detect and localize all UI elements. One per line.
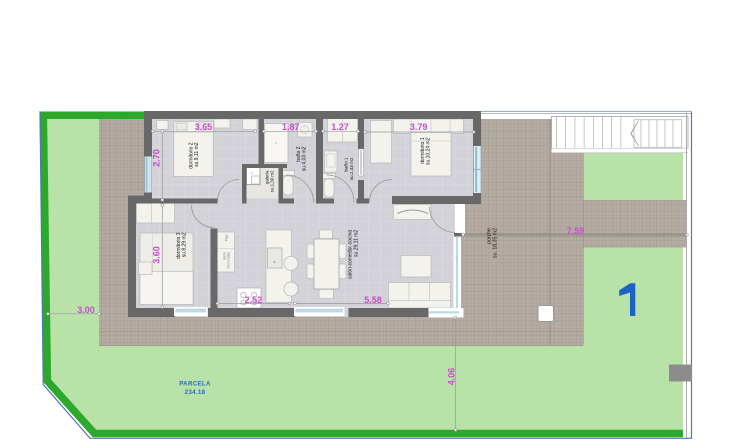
svg-text:dormitorio 1su.10,24 m2: dormitorio 1su.10,24 m2 (420, 137, 432, 165)
svg-text:dormitorio 3su.8,29 m2: dormitorio 3su.8,29 m2 (176, 232, 188, 259)
svg-text:7.59: 7.59 (567, 226, 585, 236)
svg-text:234.18: 234.18 (185, 389, 206, 396)
svg-text:3.79: 3.79 (410, 122, 428, 132)
svg-text:2.70: 2.70 (152, 149, 162, 167)
svg-text:3.65: 3.65 (195, 122, 213, 132)
svg-text:PARCELA: PARCELA (179, 381, 211, 388)
svg-text:2.52: 2.52 (245, 295, 263, 305)
svg-text:1.87: 1.87 (282, 122, 300, 132)
svg-text:1.27: 1.27 (331, 122, 349, 132)
svg-text:frigo: frigo (225, 234, 229, 241)
svg-text:dormitorio 2su.9,11 m2: dormitorio 2su.9,11 m2 (188, 142, 200, 169)
svg-text:4.06: 4.06 (447, 368, 457, 386)
svg-text:3.60: 3.60 (152, 246, 162, 264)
svg-text:5.58: 5.58 (364, 295, 382, 305)
svg-text:3.00: 3.00 (77, 305, 95, 315)
